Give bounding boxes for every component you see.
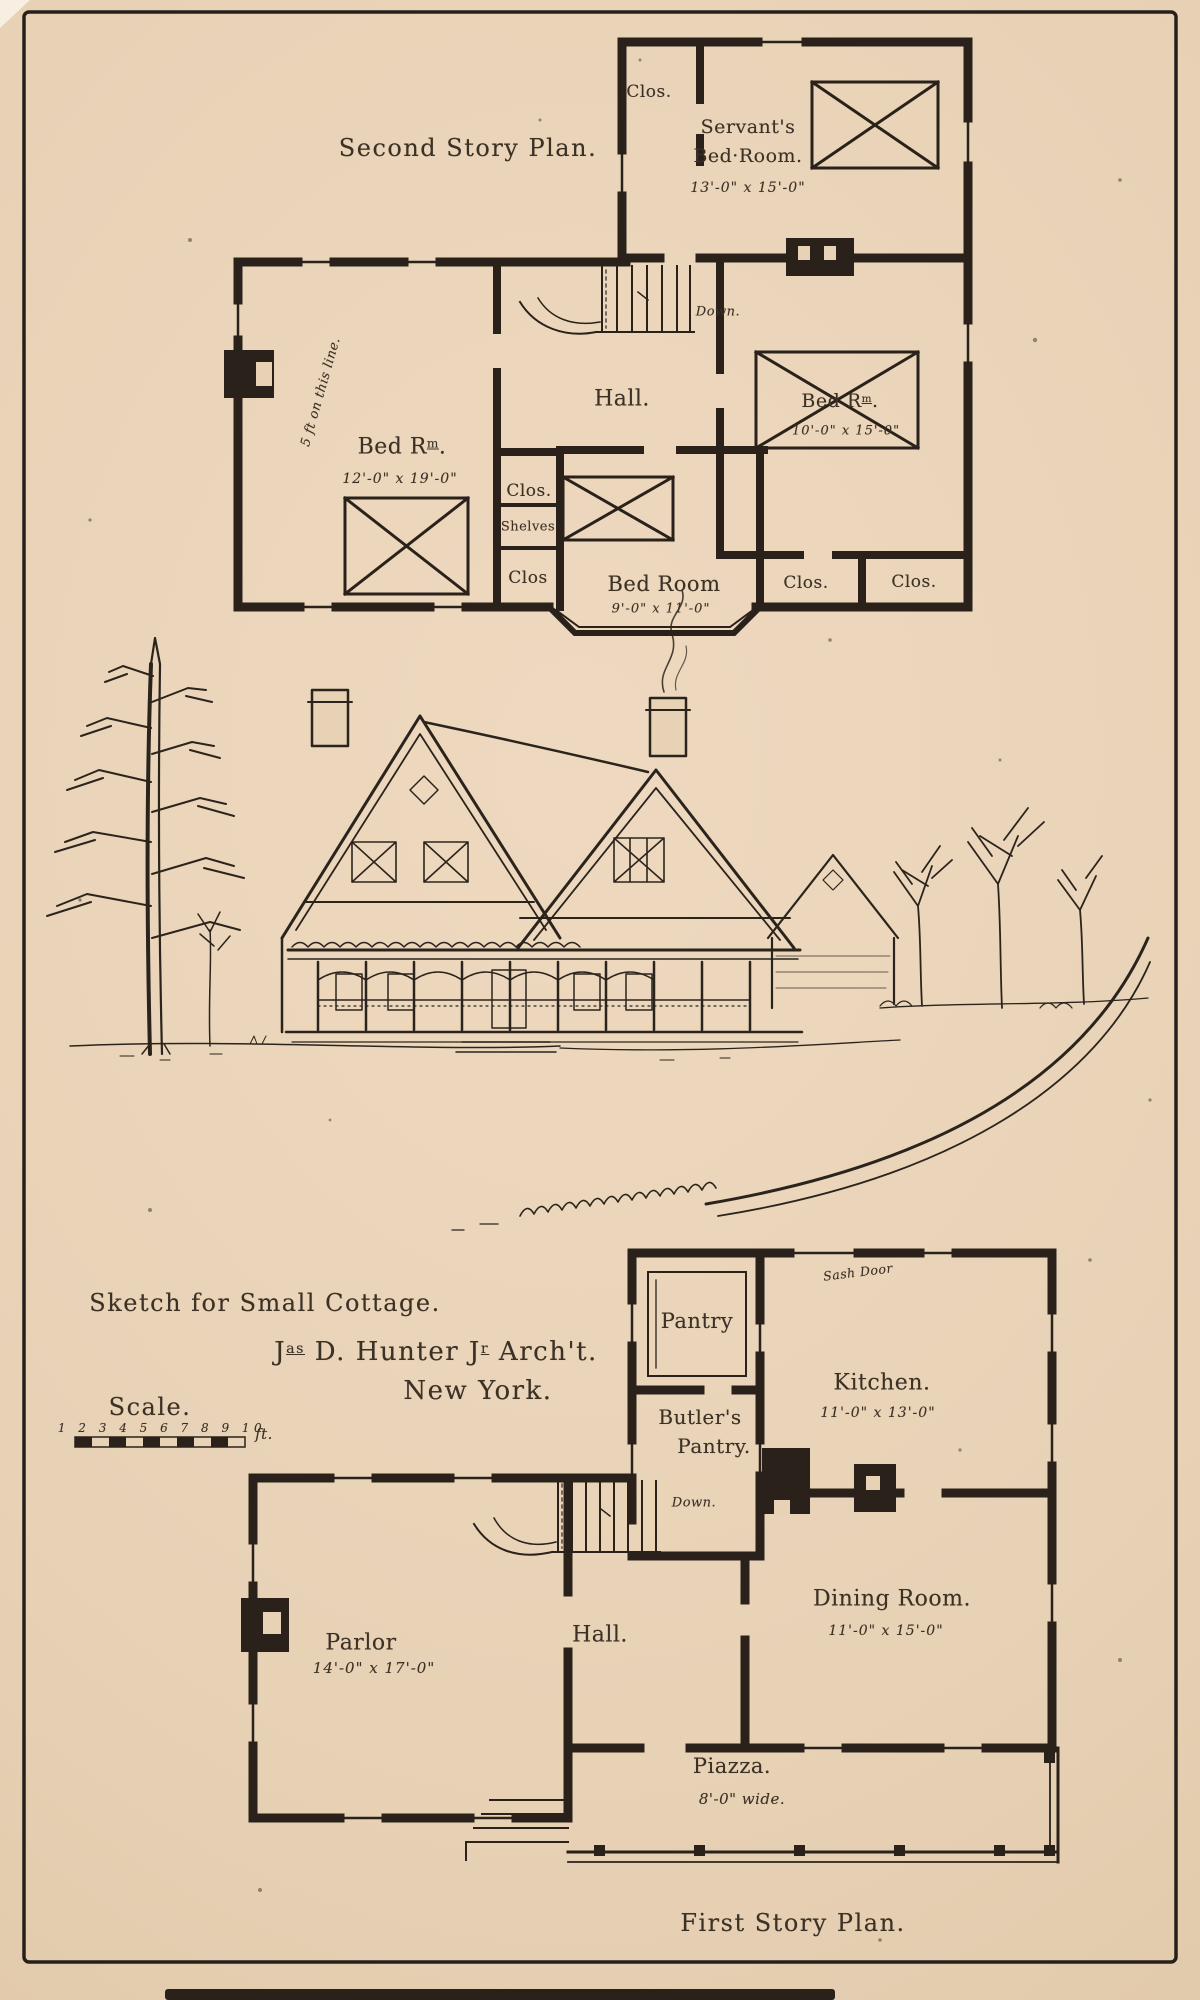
plate-linework: [0, 0, 1200, 2000]
room-dims-dining: 11'-0" x 15'-0": [828, 1623, 943, 1639]
scale-bar: [75, 1437, 245, 1447]
label-text-part: .: [439, 435, 447, 460]
room-label-hall-1st: Hall.: [572, 1623, 628, 1648]
room-label-parlor: Parlor: [325, 1631, 396, 1656]
plan-title-second-story: Second Story Plan.: [339, 134, 597, 162]
room-dims-kitchen: 11'-0" x 13'-0": [820, 1405, 935, 1421]
scale-label: Scale.: [109, 1393, 192, 1421]
room-label-clos-bottom-2: Clos.: [891, 572, 936, 592]
room-label-clos-lower: Clos: [508, 568, 547, 588]
label-sup-part: m: [862, 393, 872, 405]
sweep-curve: [452, 938, 1150, 1230]
room-label-kitchen: Kitchen.: [834, 1371, 931, 1396]
room-label-bed-room-center: Bed Room: [608, 572, 721, 596]
room-dims-piazza: 8'-0" wide.: [699, 1790, 785, 1808]
label-text-part: J: [274, 1337, 286, 1367]
room-dims-bed-rm-left: 12'-0" x 19'-0": [342, 471, 457, 487]
label-text-part: D. Hunter J: [305, 1337, 481, 1367]
room-label-clos-wing: Clos.: [626, 82, 671, 102]
label-text-part: Arch't.: [489, 1337, 598, 1367]
scale-numbers: 1 2 3 4 5 6 7 8 9 10: [58, 1421, 266, 1435]
cottage-sketch-drawing: [47, 590, 1150, 1230]
room-label-butlers-1: Butler's: [658, 1405, 741, 1429]
room-label-servants-1: Servant's: [701, 116, 796, 138]
stairs-2nd-floor: [520, 266, 694, 334]
room-label-butlers-2: Pantry.: [677, 1434, 750, 1458]
room-label-shelves: Shelves: [501, 520, 555, 535]
label-sup-part: as: [286, 1341, 305, 1357]
stairs-down-label-2nd: Down.: [696, 305, 740, 320]
room-label-pantry: Pantry: [661, 1309, 734, 1333]
room-label-servants-2: Bed·Room.: [693, 145, 802, 167]
architect-city: New York.: [403, 1376, 552, 1406]
room-dims-bed-room-center: 9'-0" x 11'-0": [612, 602, 711, 617]
room-dims-parlor: 14'-0" x 17'-0": [313, 1659, 435, 1677]
architect-credit: Jas D. Hunter Jr Arch't.: [274, 1337, 598, 1367]
room-dims-servants: 13'-0" x 15'-0": [690, 180, 805, 196]
label-sup-part: r: [481, 1341, 489, 1357]
plan-title-first-story: First Story Plan.: [680, 1909, 905, 1937]
label-sup-part: m: [427, 436, 439, 450]
bare-trees-sketch: [880, 808, 1102, 1008]
label-text-part: .: [872, 390, 879, 412]
pine-tree-sketch: [47, 638, 244, 1054]
room-label-clos-mid: Clos.: [506, 481, 551, 501]
label-text-part: Bed R: [801, 390, 861, 412]
sketch-title: Sketch for Small Cottage.: [89, 1289, 440, 1317]
page-bottom-edge: [165, 1989, 835, 2000]
room-label-bed-rm-right: Bed Rm.: [801, 390, 878, 412]
room-label-piazza: Piazza.: [693, 1754, 771, 1778]
architectural-plate: Second Story Plan. Clos. Servant's Bed·R…: [0, 0, 1200, 2000]
room-dims-bed-rm-right: 10'-0" x 15'-0": [792, 424, 900, 439]
room-label-clos-bottom-1: Clos.: [783, 573, 828, 593]
room-label-bed-rm-left: Bed Rm.: [358, 435, 447, 460]
scale-unit: ft.: [255, 1425, 273, 1443]
room-label-hall-2nd: Hall.: [594, 387, 650, 412]
room-label-dining: Dining Room.: [813, 1587, 971, 1612]
label-text-part: Bed R: [358, 435, 427, 460]
stairs-down-label-1st: Down.: [672, 1496, 716, 1511]
